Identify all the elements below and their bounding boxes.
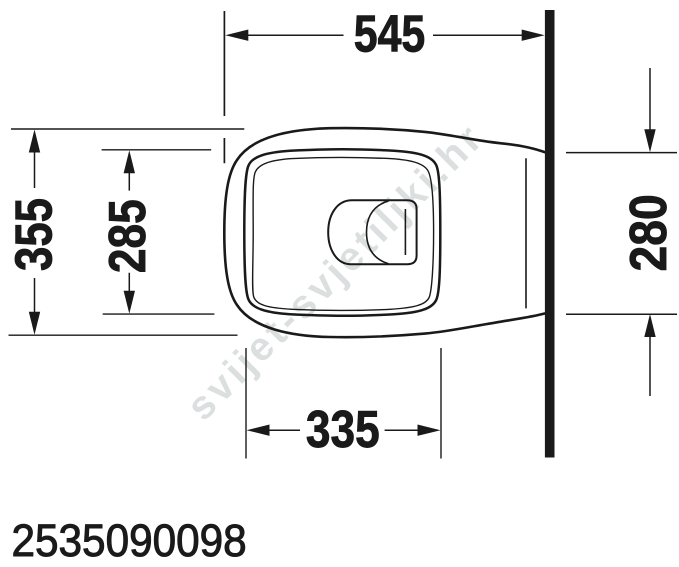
svg-text:285: 285 bbox=[99, 199, 157, 273]
svg-text:545: 545 bbox=[354, 6, 426, 64]
svg-text:355: 355 bbox=[6, 198, 63, 271]
svg-text:335: 335 bbox=[306, 401, 380, 459]
svg-text:280: 280 bbox=[620, 194, 678, 271]
svg-text:2535090098: 2535090098 bbox=[12, 516, 247, 566]
